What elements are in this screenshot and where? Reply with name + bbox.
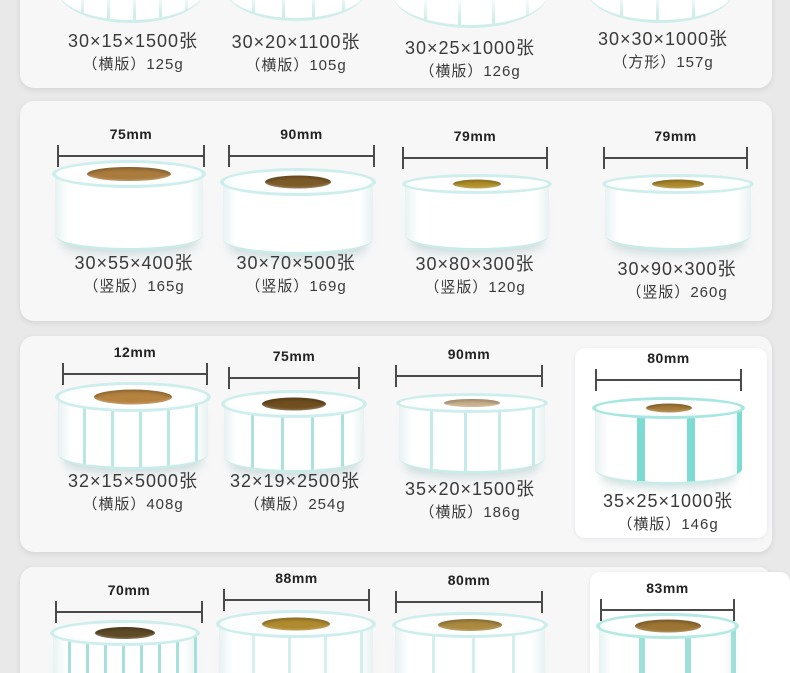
product-spec: 32×15×5000张 （横版）408g [41,470,225,514]
width-dimension: 75mm [57,126,205,167]
dimension-bar [595,369,742,391]
product-size: 30×25×1000张 [378,37,562,59]
product-size: 30×80×300张 [383,253,567,275]
roll-side [405,184,549,251]
product-variant-weight: （竖版）169g [204,277,388,296]
product-spec: 30×20×1100张 （横版）105g [204,31,388,75]
product-size: 32×15×5000张 [41,470,225,492]
width-dimension: 80mm [395,572,543,613]
label-roll-size-catalog: 30×15×1500张 （横版）125g 30×20×1100张 （横版）105… [0,0,790,673]
dimension-bar [228,145,375,167]
roll-top [220,168,376,196]
roll-top [216,610,376,638]
dimension-bar [402,147,548,169]
width-dimension-label: 80mm [595,350,742,366]
width-dimension-label: 12mm [62,344,208,360]
width-dimension: 90mm [395,346,543,387]
roll-core [444,399,500,407]
product-variant-weight: （横版）125g [41,55,225,74]
product-size: 30×15×1500张 [41,30,225,52]
product-spec: 30×25×1000张 （横版）126g [378,37,562,81]
product-size: 30×55×400张 [42,252,226,274]
roll-core [635,620,701,633]
roll-core [262,398,326,411]
width-dimension-label: 79mm [603,128,748,144]
width-dimension: 88mm [223,570,370,611]
product-variant-weight: （横版）408g [41,495,225,514]
product-size: 30×70×500张 [204,252,388,274]
roll-side [595,408,742,485]
roll-top [396,393,548,413]
product-spec: 30×30×1000张 （方形）157g [571,28,755,72]
roll-core [646,404,692,413]
product-variant-weight: （竖版）120g [383,278,567,297]
dimension-bar [228,367,360,389]
product-spec: 30×80×300张 （竖版）120g [383,253,567,297]
roll-top [602,174,754,194]
product-variant-weight: （方形）157g [571,53,755,72]
width-dimension-label: 88mm [223,570,370,586]
width-dimension-label: 75mm [228,348,360,364]
width-dimension-label: 75mm [57,126,205,142]
product-spec: 32×19×2500张 （横版）254g [203,470,387,514]
roll-side [605,184,751,251]
roll-top [50,620,200,646]
product-spec: 35×25×1000张 （横版）146g [576,490,760,534]
dimension-bar [600,599,735,621]
roll-core [438,619,502,631]
product-spec: 35×20×1500张 （横版）186g [378,478,562,522]
dimension-bar [395,591,543,613]
width-dimension-label: 79mm [402,128,548,144]
roll-top [392,612,548,638]
roll-core [262,618,330,631]
width-dimension-label: 90mm [395,346,543,362]
width-dimension-label: 83mm [600,580,735,596]
width-dimension: 90mm [228,126,375,167]
product-spec: 30×15×1500张 （横版）125g [41,30,225,74]
product-size: 32×19×2500张 [203,470,387,492]
dimension-bar [57,145,205,167]
dimension-bar [62,363,208,385]
width-dimension: 12mm [62,344,208,385]
width-dimension: 70mm [55,582,203,623]
width-dimension-label: 70mm [55,582,203,598]
roll-core [453,180,501,189]
roll-side [399,403,545,474]
product-variant-weight: （横版）146g [576,515,760,534]
product-size: 35×20×1500张 [378,478,562,500]
product-size: 30×30×1000张 [571,28,755,50]
width-dimension: 80mm [595,350,742,391]
product-variant-weight: （横版）105g [204,56,388,75]
roll-top [55,382,211,412]
width-dimension: 83mm [600,580,735,621]
width-dimension: 79mm [402,128,548,169]
width-dimension-label: 90mm [228,126,375,142]
roll-top [402,174,552,194]
width-dimension-label: 80mm [395,572,543,588]
width-dimension: 79mm [603,128,748,169]
product-variant-weight: （横版）186g [378,503,562,522]
product-variant-weight: （横版）126g [378,62,562,81]
product-variant-weight: （竖版）260g [585,283,769,302]
product-spec: 30×55×400张 （竖版）165g [42,252,226,296]
product-spec: 30×70×500张 （竖版）169g [204,252,388,296]
product-size: 30×20×1100张 [204,31,388,53]
dimension-bar [223,589,370,611]
product-size: 30×90×300张 [585,258,769,280]
product-size: 35×25×1000张 [576,490,760,512]
roll-core [94,390,172,405]
dimension-bar [603,147,748,169]
roll-core [265,176,331,189]
roll-core [652,180,704,189]
roll-core [87,167,171,181]
dimension-bar [55,601,203,623]
roll-top [221,390,367,418]
product-spec: 30×90×300张 （竖版）260g [585,258,769,302]
roll-top [592,397,745,419]
dimension-bar [395,365,543,387]
width-dimension: 75mm [228,348,360,389]
roll-core [95,627,155,639]
product-variant-weight: （竖版）165g [42,277,226,296]
product-variant-weight: （横版）254g [203,495,387,514]
